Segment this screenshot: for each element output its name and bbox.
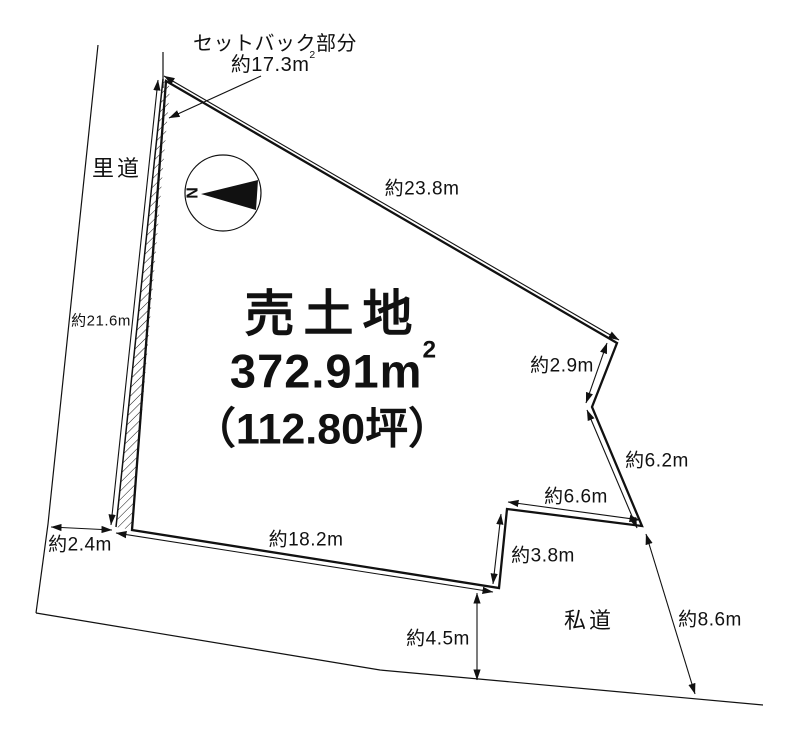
compass-north-text: N — [185, 187, 202, 199]
dim-label-east-upper: 約2.9m — [530, 357, 594, 376]
dim-label-private-road-length: 約8.6m — [678, 611, 742, 630]
setback-area-sup: 2 — [309, 50, 315, 61]
plot-area-sup: 2 — [422, 336, 436, 363]
setback-note-area: 約17.3m2 — [231, 55, 315, 75]
plot-area-value: 372.91m — [230, 345, 423, 398]
dim-label-southeast-step: 約3.8m — [511, 547, 575, 566]
dim-line-west-road-width — [51, 527, 112, 530]
setback-west-boundary-line — [116, 79, 163, 527]
dim-label-private-road-width: 約4.5m — [406, 630, 470, 649]
south-road-outer-line — [36, 613, 763, 705]
plot-title: 売土地 — [245, 289, 422, 339]
dim-label-southeast-upper: 約6.6m — [544, 488, 608, 507]
dim-label-west-road-width: 約2.4m — [48, 536, 112, 555]
setback-area-value: 約17.3m — [231, 54, 310, 76]
plot-area-tsubo: （112.80坪） — [193, 409, 451, 452]
dim-label-east-mid: 約6.2m — [625, 452, 689, 471]
land-plot-diagram: N セットバック部分 約17.3m2 里道 私道 約21.6m 約23.8m 約… — [0, 0, 800, 738]
north-compass: N — [185, 155, 262, 231]
dim-label-south-edge: 約18.2m — [269, 531, 344, 550]
dim-label-northeast-edge: 約23.8m — [385, 180, 460, 199]
setback-leader-line — [169, 76, 261, 118]
setback-note-title: セットバック部分 — [193, 34, 357, 54]
west-road-label: 里道 — [92, 158, 142, 180]
compass-needle — [201, 180, 258, 210]
plot-area: 372.91m2 — [230, 348, 436, 395]
dim-label-west-edge: 約21.6m — [71, 314, 131, 329]
private-road-label: 私道 — [564, 610, 614, 632]
